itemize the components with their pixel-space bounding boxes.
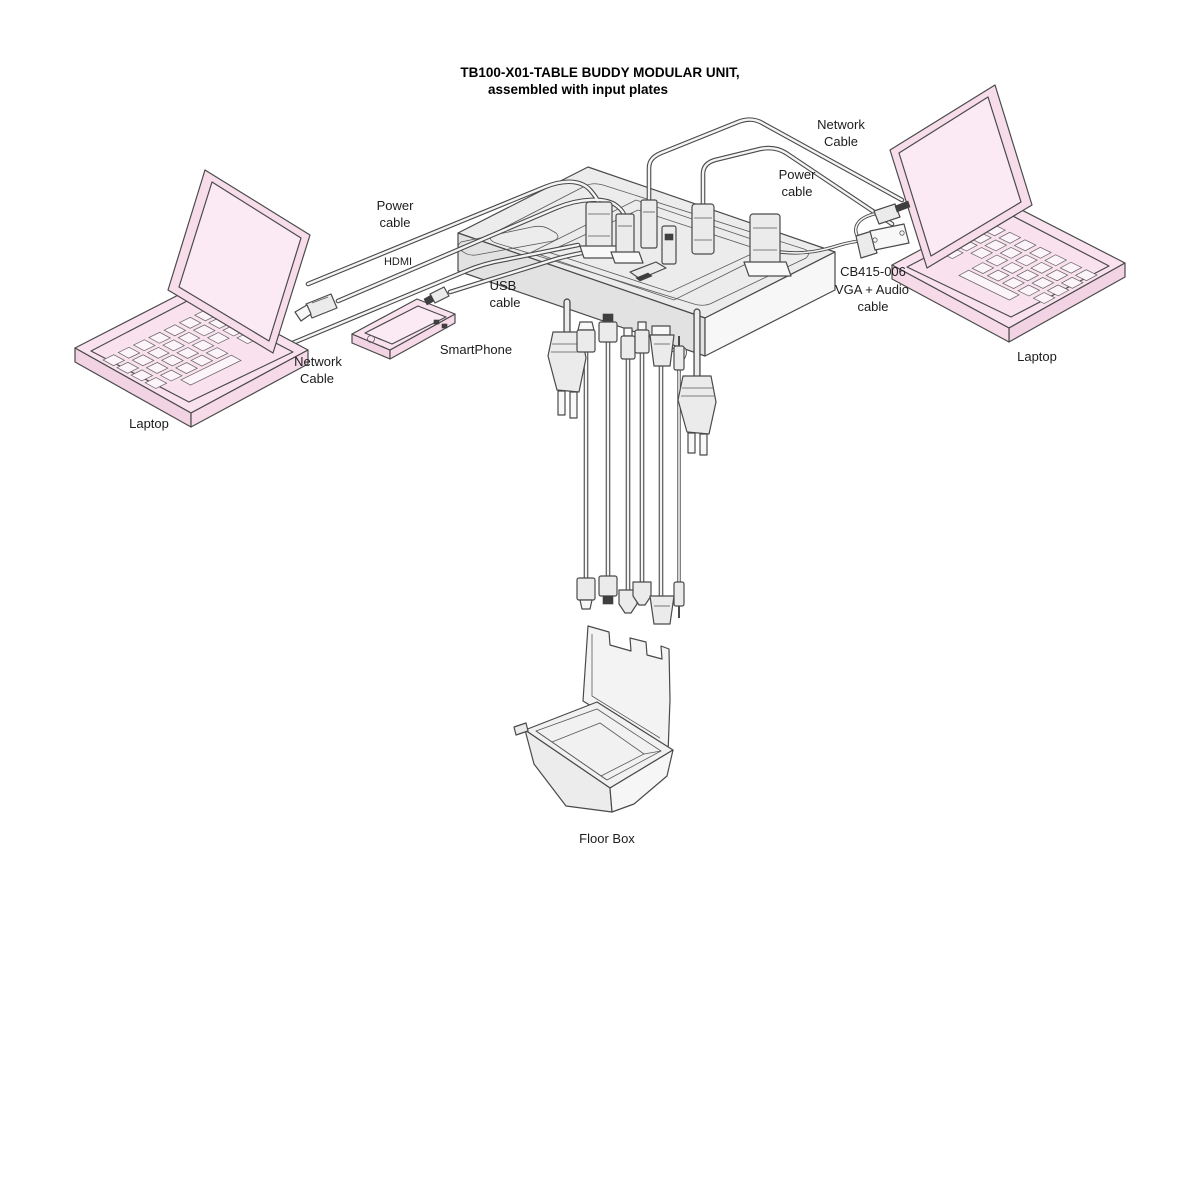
- vga-connector-top: [650, 326, 674, 366]
- vga-audio-connector: [856, 201, 910, 258]
- unit-network-socket: [641, 200, 657, 248]
- label-usb-cable-2: cable: [489, 295, 520, 310]
- audio-jack-bottom: [674, 582, 684, 618]
- diagram-page: TB100-X01-TABLE BUDDY MODULAR UNIT, asse…: [0, 0, 1200, 1200]
- label-power-cable-left-1: Power: [377, 198, 415, 213]
- label-smartphone: SmartPhone: [440, 342, 512, 357]
- label-network-cable-right-1: Network: [817, 117, 865, 132]
- label-network-cable-left-1: Network: [294, 354, 342, 369]
- usb-connector-bottom: [599, 576, 617, 604]
- label-usb-cable-1: USB: [490, 278, 517, 293]
- plug-connector-top-1: [621, 328, 635, 359]
- unit-power-socket-right: [692, 204, 714, 254]
- label-laptop-right: Laptop: [1017, 349, 1057, 364]
- unit-usb-socket: [662, 226, 676, 264]
- label-network-cable-right-2: Cable: [824, 134, 858, 149]
- label-network-cable-left-2: Cable: [300, 371, 334, 386]
- label-power-cable-left-2: cable: [379, 215, 410, 230]
- hdmi-connector-bottom: [577, 578, 595, 609]
- laptop-left: [75, 170, 310, 427]
- laptop-right: [890, 85, 1125, 342]
- hdmi-connector-top: [577, 322, 595, 352]
- diagram-title-line2: assembled with input plates: [488, 82, 668, 97]
- label-vga-audio-1: CB415-006: [840, 264, 906, 279]
- label-power-cable-right-1: Power: [779, 167, 817, 182]
- label-floor-box: Floor Box: [579, 831, 635, 846]
- power-plug-right: [678, 376, 716, 455]
- table-buddy-diagram: TB100-X01-TABLE BUDDY MODULAR UNIT, asse…: [0, 0, 1200, 1200]
- label-vga-audio-3: cable: [857, 299, 888, 314]
- diagram-title-line1: TB100-X01-TABLE BUDDY MODULAR UNIT,: [460, 65, 739, 80]
- label-laptop-left: Laptop: [129, 416, 169, 431]
- label-power-cable-right-2: cable: [781, 184, 812, 199]
- vga-connector-bottom: [650, 596, 674, 624]
- label-hdmi: HDMI: [384, 256, 412, 268]
- floor-box: [514, 626, 673, 812]
- audio-jack: [874, 201, 910, 224]
- hdmi-plug: [295, 294, 337, 321]
- usb-plug: [424, 287, 449, 305]
- label-vga-audio-2: VGA + Audio: [835, 282, 909, 297]
